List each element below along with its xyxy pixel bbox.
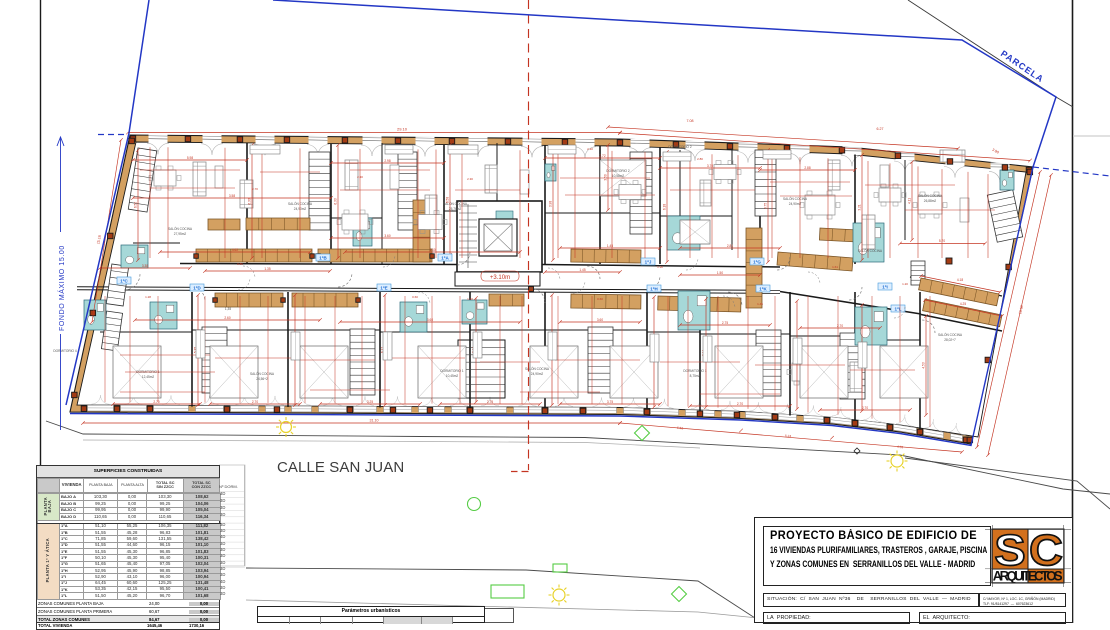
svg-text:1.40: 1.40 (467, 297, 473, 301)
svg-text:2.70: 2.70 (252, 400, 258, 404)
svg-text:24,90m2: 24,90m2 (789, 202, 802, 206)
svg-text:5.24: 5.24 (785, 434, 792, 439)
svg-text:SALÓN COCINA: SALÓN COCINA (168, 226, 193, 231)
svg-text:3.21: 3.21 (858, 204, 862, 210)
svg-text:6.62: 6.62 (677, 426, 684, 430)
svg-text:DORMITORIO 1: DORMITORIO 1 (440, 369, 464, 373)
svg-text:31.10: 31.10 (370, 419, 379, 423)
svg-text:2.10: 2.10 (587, 147, 593, 151)
svg-text:1ªH: 1ªH (650, 287, 657, 292)
svg-text:FONDO MÁXIMO 15.00: FONDO MÁXIMO 15.00 (57, 245, 66, 331)
svg-text:10,58m2: 10,58m2 (612, 174, 625, 178)
svg-text:7.08: 7.08 (687, 119, 694, 123)
svg-text:4.18: 4.18 (957, 278, 963, 282)
svg-text:S: S (994, 525, 1025, 574)
svg-text:4.53: 4.53 (897, 445, 904, 450)
svg-text:3.98: 3.98 (549, 201, 553, 207)
svg-text:2.75: 2.75 (722, 321, 728, 325)
svg-text:SALÓN COCINA: SALÓN COCINA (288, 201, 313, 206)
svg-text:1ªI: 1ªI (882, 285, 887, 290)
svg-text:2.81: 2.81 (727, 244, 733, 248)
svg-text:1ªD: 1ªD (193, 286, 201, 291)
svg-text:2.30: 2.30 (467, 177, 473, 181)
svg-text:+3.10m: +3.10m (490, 275, 510, 281)
svg-text:C: C (1029, 525, 1063, 574)
svg-text:DORMITORIO 2: DORMITORIO 2 (606, 169, 630, 173)
svg-text:SALÓN COCINA: SALÓN COCINA (783, 196, 808, 201)
svg-text:2.70: 2.70 (252, 187, 258, 191)
svg-text:15.18: 15.18 (96, 235, 102, 245)
svg-text:1ªJ: 1ªJ (645, 260, 652, 265)
svg-text:1.20: 1.20 (902, 282, 908, 286)
svg-text:3.58: 3.58 (229, 194, 235, 198)
svg-text:2.80: 2.80 (697, 157, 703, 161)
svg-text:3.60: 3.60 (384, 234, 390, 238)
svg-text:ARQUITECTOS: ARQUITECTOS (993, 568, 1063, 583)
svg-text:3.75: 3.75 (607, 400, 613, 404)
svg-text:27,95m2: 27,95m2 (174, 232, 187, 236)
svg-text:2.60: 2.60 (224, 316, 230, 320)
svg-text:3.70: 3.70 (707, 164, 713, 168)
svg-text:1ªL: 1ªL (895, 307, 902, 312)
svg-text:1ªB: 1ªB (319, 256, 327, 261)
svg-text:1ªK: 1ªK (759, 287, 767, 292)
svg-text:6.27: 6.27 (877, 127, 884, 131)
svg-text:DORMITORIO 1: DORMITORIO 1 (683, 369, 707, 373)
svg-text:6.33: 6.33 (248, 198, 252, 204)
svg-text:1.28: 1.28 (145, 295, 151, 299)
svg-text:2.70: 2.70 (737, 402, 743, 406)
svg-text:0.60: 0.60 (597, 297, 603, 301)
svg-text:29.10: 29.10 (397, 127, 408, 132)
svg-text:24,90m2: 24,90m2 (531, 372, 544, 376)
svg-text:2.72: 2.72 (599, 154, 605, 158)
svg-text:1.45: 1.45 (579, 268, 585, 272)
svg-text:1ªG: 1ªG (753, 260, 761, 265)
svg-text:12,45m2: 12,45m2 (142, 375, 155, 379)
svg-text:5.98: 5.98 (187, 156, 193, 160)
svg-text:6.52: 6.52 (134, 202, 138, 208)
svg-text:4.75: 4.75 (764, 203, 768, 209)
svg-text:1.61: 1.61 (832, 265, 838, 269)
svg-text:3.60: 3.60 (597, 318, 603, 322)
svg-text:1,35: 1,35 (225, 307, 231, 311)
svg-text:26,88m2: 26,88m2 (924, 199, 937, 203)
svg-text:DORMITORIO 2: DORMITORIO 2 (668, 145, 692, 149)
svg-text:10,45m2: 10,45m2 (446, 374, 459, 378)
svg-text:2.98: 2.98 (384, 159, 390, 163)
svg-text:2.70: 2.70 (862, 406, 868, 410)
svg-text:1ªC: 1ªC (120, 279, 128, 284)
svg-text:1.45: 1.45 (757, 302, 763, 306)
svg-text:3.38: 3.38 (142, 264, 148, 268)
svg-text:1.50: 1.50 (717, 271, 723, 275)
svg-text:0.85: 0.85 (237, 262, 243, 266)
svg-text:25,76m2: 25,76m2 (449, 207, 462, 211)
svg-text:6.18: 6.18 (663, 204, 667, 210)
svg-text:1ªA: 1ªA (441, 256, 449, 261)
svg-text:2.75: 2.75 (487, 400, 493, 404)
svg-text:24,56+2: 24,56+2 (256, 377, 268, 381)
svg-text:6.33: 6.33 (334, 198, 338, 204)
svg-text:SALÓN COCINA: SALÓN COCINA (938, 332, 963, 337)
svg-text:DORMITORIO 4: DORMITORIO 4 (53, 349, 77, 353)
svg-text:3.60: 3.60 (427, 318, 433, 322)
svg-text:6.58: 6.58 (446, 197, 450, 203)
svg-text:3.60: 3.60 (429, 248, 435, 252)
svg-text:0.60: 0.60 (412, 295, 418, 299)
svg-text:1ªE: 1ªE (380, 286, 387, 291)
svg-text:4.25: 4.25 (960, 302, 966, 306)
svg-text:1.30: 1.30 (657, 265, 663, 269)
svg-text:28,02+7: 28,02+7 (944, 338, 956, 342)
svg-text:15.63: 15.63 (1018, 305, 1024, 315)
svg-text:2.70: 2.70 (153, 400, 159, 404)
svg-text:4.11: 4.11 (908, 198, 912, 204)
svg-text:2.88: 2.88 (804, 166, 810, 170)
svg-text:4.62: 4.62 (232, 248, 238, 252)
svg-text:SALÓN COCINA: SALÓN COCINA (250, 371, 275, 376)
svg-text:1.35: 1.35 (264, 267, 270, 271)
svg-text:1.45: 1.45 (607, 244, 613, 248)
svg-text:3.50: 3.50 (604, 174, 608, 180)
svg-text:4.53: 4.53 (922, 362, 926, 368)
svg-text:SALÓN COCINA: SALÓN COCINA (918, 193, 943, 198)
svg-text:3.98: 3.98 (991, 148, 999, 155)
svg-text:8,75m2: 8,75m2 (690, 374, 701, 378)
svg-text:3.25: 3.25 (367, 400, 373, 404)
